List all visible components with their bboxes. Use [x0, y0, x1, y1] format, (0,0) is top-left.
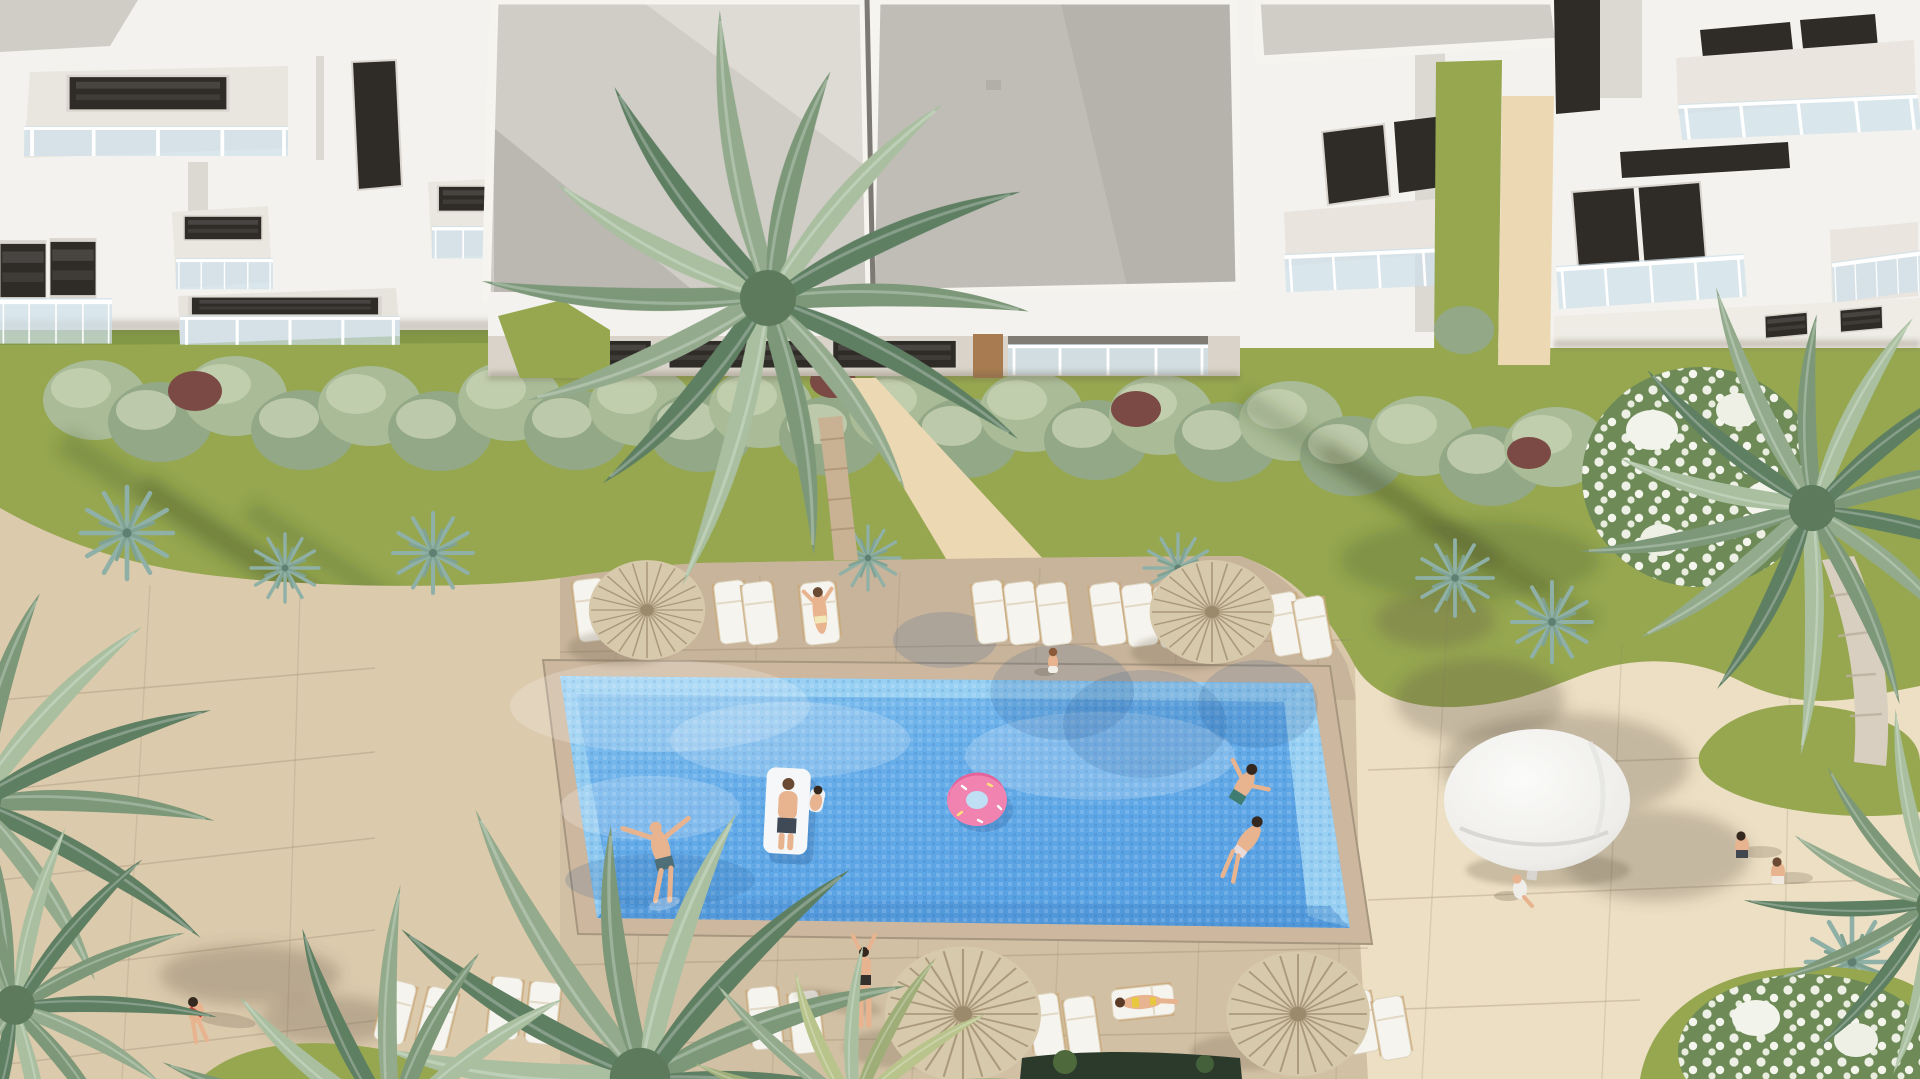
building-right	[1240, 0, 1920, 348]
scene-canvas	[0, 0, 1920, 1079]
wooden-entry-panel	[973, 334, 1003, 378]
side-footpath	[1498, 96, 1554, 365]
apartment-buildings	[0, 0, 1920, 380]
aerial-render-image	[0, 0, 1920, 1079]
building-left	[0, 0, 562, 345]
pool-float-mat	[763, 767, 817, 865]
